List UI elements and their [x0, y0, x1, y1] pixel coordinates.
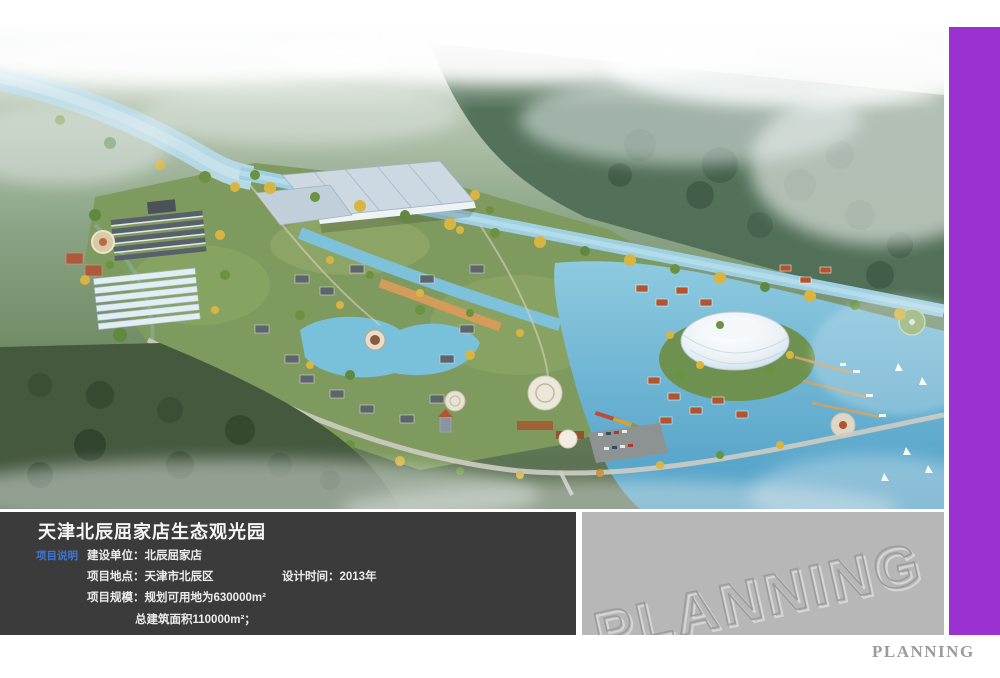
- scale-value-2: 总建筑面积110000m²；: [135, 614, 256, 626]
- construction-unit-label: 建设单位：: [87, 550, 145, 562]
- location-value: 天津市北辰区: [145, 571, 214, 583]
- section-label: 项目说明: [36, 548, 78, 563]
- location-label: 项目地点：: [87, 571, 145, 583]
- scale-line-2: 总建筑面积110000m²；: [135, 611, 256, 627]
- fountain-tent: [559, 430, 577, 448]
- accent-bar: [949, 27, 1000, 635]
- presentation-board: 天津北辰屈家店生态观光园 项目说明 建设单位：北辰屈家店 项目地点：天津市北辰区…: [0, 0, 1000, 678]
- aerial-render: [0, 25, 944, 509]
- project-info-panel: 天津北辰屈家店生态观光园 项目说明 建设单位：北辰屈家店 项目地点：天津市北辰区…: [0, 512, 576, 635]
- watermark-text: PLANNING: [588, 530, 929, 635]
- watermark-graphic: PLANNING PLANNING: [582, 512, 944, 635]
- scale-value-1: 规划可用地为630000m²: [145, 592, 266, 604]
- sports-court: [66, 253, 83, 264]
- aerial-render-scene: [0, 25, 944, 509]
- design-time-line: 设计时间：2013年: [282, 568, 377, 584]
- entrance-building: [517, 421, 553, 430]
- design-time-value: 2013年: [340, 571, 377, 583]
- sports-court: [85, 265, 102, 276]
- scale-line: 项目规模：规划可用地为630000m²: [87, 589, 266, 605]
- design-time-label: 设计时间：: [282, 571, 340, 583]
- project-title: 天津北辰屈家店生态观光园: [38, 518, 266, 544]
- construction-unit-line: 建设单位：北辰屈家店: [87, 547, 202, 563]
- location-line: 项目地点：天津市北辰区: [87, 568, 214, 584]
- scale-label: 项目规模：: [87, 592, 145, 604]
- footer-brand: PLANNING: [872, 642, 975, 662]
- watermark-panel: PLANNING PLANNING: [582, 512, 944, 635]
- construction-unit-value: 北辰屈家店: [145, 550, 203, 562]
